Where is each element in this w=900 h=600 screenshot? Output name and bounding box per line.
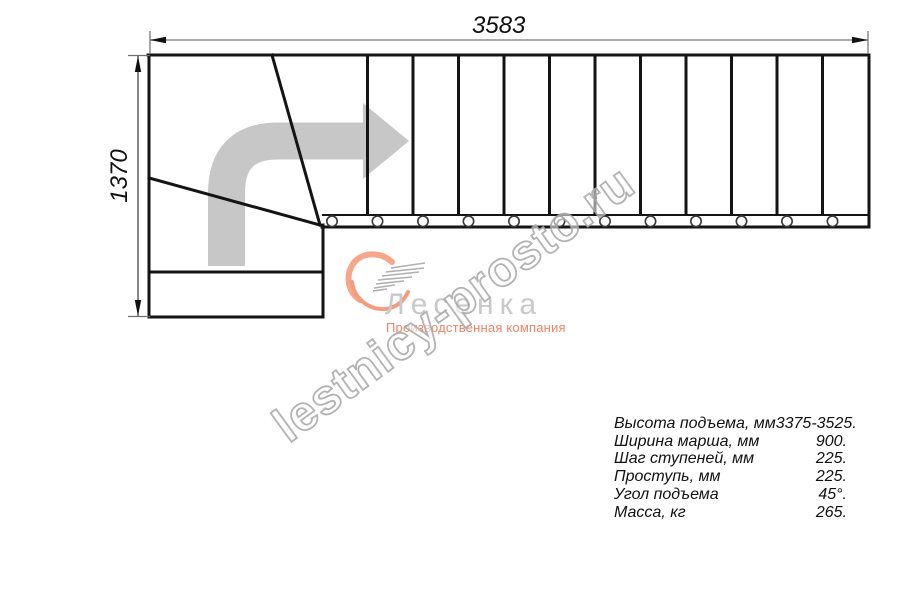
logo-company-name: Лесенка (385, 288, 542, 322)
spec-row: Ширина марша, мм 900. (614, 433, 847, 451)
spec-row: Масса, кг 265. (614, 504, 847, 522)
spec-label: Ширина марша, мм (614, 433, 759, 451)
spec-value: 900. (816, 433, 847, 451)
baluster-markers (327, 216, 838, 226)
spec-value: 265. (816, 504, 847, 522)
spec-row: Проступь, мм 225. (614, 468, 847, 486)
spec-label: Угол подъема (614, 486, 719, 504)
spec-label: Шаг ступеней, мм (614, 450, 754, 468)
spec-value: 45°. (818, 486, 847, 504)
dim-arrow-right-icon (852, 37, 868, 43)
logo-tagline: Производственная компания (386, 320, 566, 335)
spec-row: Шаг ступеней, мм 225. (614, 450, 847, 468)
dim-arrow-left-icon (150, 37, 166, 43)
spec-label: Масса, кг (614, 504, 686, 522)
spec-table: Высота подъема, мм 3375-3525. Ширина мар… (614, 415, 847, 521)
spec-label: Проступь, мм (614, 468, 720, 486)
stair-outline (148, 55, 869, 317)
spec-label: Высота подъема, мм (614, 415, 776, 433)
spec-value: 225. (816, 450, 847, 468)
spec-row: Угол подъема 45°. (614, 486, 847, 504)
spec-row: Высота подъема, мм 3375-3525. (614, 415, 847, 433)
direction-arrow-icon (227, 103, 410, 266)
tread-lines (368, 55, 823, 215)
logo-stairs-lines (373, 263, 425, 291)
dim-arrow-down-icon (135, 300, 141, 316)
dimension-height-label: 1370 (106, 144, 134, 208)
spec-value: 225. (816, 468, 847, 486)
spec-value: 3375-3525. (776, 415, 857, 433)
dim-arrow-up-icon (135, 56, 141, 72)
dimension-width-label: 3583 (472, 12, 525, 40)
